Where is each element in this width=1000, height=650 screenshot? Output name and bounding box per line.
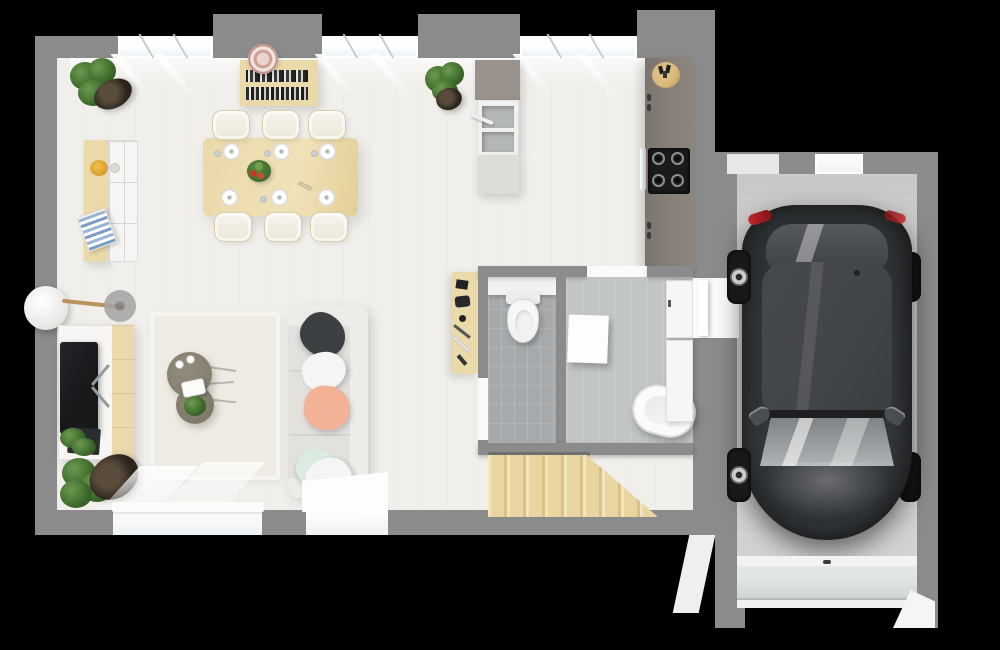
toilet-bowl (507, 299, 539, 343)
exterior-wall-stub (673, 535, 716, 613)
bathroom-wall-top (478, 266, 587, 277)
decorative-plate (248, 44, 278, 74)
place-setting (318, 189, 335, 206)
wheel-front-left (727, 448, 751, 502)
yellow-bowl (90, 160, 108, 176)
dining-chair (214, 212, 252, 242)
floor-plan-scene (0, 0, 1000, 650)
small-cup (110, 163, 120, 173)
cup (260, 196, 267, 203)
sofa-backrest (350, 310, 368, 494)
desk-item (455, 279, 468, 290)
cabinet-handle (647, 232, 651, 239)
dining-chair (212, 110, 250, 140)
bathroom-side-table (567, 314, 609, 363)
bookshelf-books (246, 87, 308, 100)
cabinet-handle (668, 300, 671, 307)
place-setting (221, 189, 238, 206)
dining-chair (262, 110, 300, 140)
window-mullion (378, 34, 395, 60)
car-roof (762, 262, 892, 420)
cabinet-handle (647, 104, 651, 111)
place-setting (273, 143, 290, 160)
toilet-seat-inner (515, 310, 533, 336)
wheel-rear-left (727, 250, 751, 304)
wc-wall-left (478, 277, 488, 378)
wheel-rim (730, 466, 748, 484)
sliding-glass-door (113, 510, 262, 535)
fruit (258, 173, 264, 179)
place-setting (223, 143, 240, 160)
garage-door-handle (823, 560, 831, 564)
window-mullion (342, 34, 359, 60)
place-setting (271, 189, 288, 206)
rug (150, 312, 280, 480)
window-mullion (138, 34, 155, 60)
glass-reflection (827, 418, 871, 466)
sofa-seam (290, 434, 350, 436)
garage-door-opening (745, 608, 907, 628)
door-sill (112, 502, 264, 512)
plant-foliage (72, 438, 96, 456)
garage-window (815, 154, 863, 174)
tea-cup (186, 355, 195, 364)
roof-reflection (796, 262, 824, 412)
floor-lamp-shade (24, 286, 68, 330)
hood-shine (756, 462, 898, 524)
cooktop (648, 148, 690, 194)
window-mullion (588, 34, 605, 60)
cooktop-burner (652, 174, 665, 187)
roof-antenna (854, 270, 860, 276)
window-top-1 (118, 36, 213, 58)
fruit-bowl (247, 160, 271, 182)
top-wall-lintel-3 (637, 10, 715, 58)
sink-basin (482, 106, 514, 128)
window-mullion (172, 34, 189, 60)
top-wall-left-segment (35, 36, 118, 58)
utensil (663, 71, 667, 78)
bathroom-wall-top (647, 266, 693, 277)
garage-door-threshold (737, 600, 917, 608)
oven-handle (640, 148, 646, 190)
dining-chair (264, 212, 302, 242)
tv-stand-wood-panel (112, 325, 134, 460)
wc-door-opening (478, 378, 488, 440)
garage-wall-highlight (727, 154, 779, 174)
kitchen-sink-unit (477, 100, 519, 156)
wc-bathroom-divider-wall (556, 277, 566, 443)
cup (264, 150, 271, 157)
garage-access-door-leaf (698, 280, 708, 336)
car-windshield (760, 418, 894, 466)
cooktop-burner (652, 152, 665, 165)
plant-foliage (60, 480, 92, 508)
table-plant (184, 396, 206, 416)
entry-door-opening (306, 510, 388, 535)
bathroom-cabinet (666, 340, 693, 422)
fruit (250, 170, 257, 177)
place-setting (319, 143, 336, 160)
fruit (255, 162, 263, 170)
top-wall-lintel-2 (418, 14, 520, 58)
cooktop-burner (671, 152, 684, 165)
bottom-wall-segment (262, 510, 306, 535)
utensil-basket (652, 62, 680, 88)
cabinet-handle (647, 222, 651, 229)
glass-reflection (779, 418, 815, 466)
sideboard-doors (108, 140, 138, 262)
sink-basin (482, 132, 514, 152)
tea-cup (175, 360, 184, 369)
bathroom-door-opening (587, 266, 647, 277)
cup (311, 150, 318, 157)
window-mullion (546, 34, 563, 60)
dining-chair (310, 212, 348, 242)
bathroom-cabinet (666, 280, 693, 338)
dining-chair (308, 110, 346, 140)
cabinet-handle (647, 94, 651, 101)
floor-lamp-base (104, 290, 136, 322)
kitchen-island-top (475, 60, 520, 100)
kitchen-island-base (477, 156, 519, 194)
bottom-wall-segment (35, 510, 113, 535)
cooktop-burner (671, 174, 684, 187)
cup (214, 150, 221, 157)
desk-gamepad (454, 295, 470, 308)
window-light-pool (70, 58, 650, 86)
wheel-rim (730, 268, 748, 286)
desk-item (459, 315, 466, 322)
